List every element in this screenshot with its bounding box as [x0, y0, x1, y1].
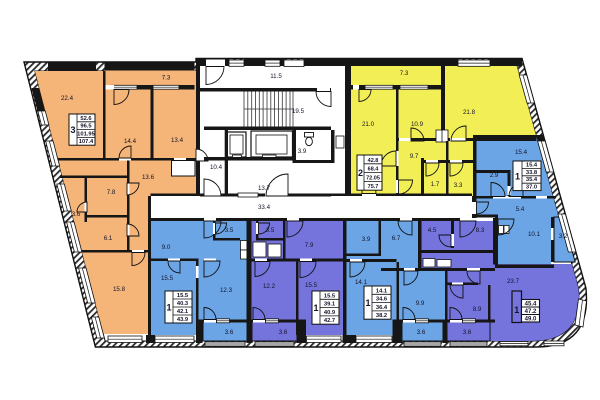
svg-text:33.8: 33.8: [526, 170, 538, 176]
svg-text:3.6: 3.6: [72, 211, 81, 218]
svg-text:1: 1: [365, 298, 370, 308]
svg-text:23.7: 23.7: [507, 278, 520, 285]
svg-text:49.0: 49.0: [525, 317, 537, 323]
svg-text:3.9: 3.9: [362, 236, 371, 243]
svg-text:7.3: 7.3: [162, 75, 171, 82]
svg-text:15.8: 15.8: [113, 286, 126, 293]
svg-text:9.9: 9.9: [416, 300, 425, 307]
svg-text:5.4: 5.4: [516, 206, 525, 213]
svg-text:2: 2: [358, 168, 363, 178]
svg-text:15.5: 15.5: [177, 293, 189, 299]
svg-text:3.6: 3.6: [463, 329, 472, 336]
svg-text:10.4: 10.4: [210, 164, 223, 171]
svg-text:42.1: 42.1: [177, 309, 189, 315]
svg-text:107.4: 107.4: [79, 139, 94, 145]
svg-text:38.2: 38.2: [376, 313, 387, 319]
svg-text:15.5: 15.5: [161, 275, 174, 282]
svg-text:3.9: 3.9: [298, 148, 307, 155]
svg-text:40.9: 40.9: [324, 310, 336, 316]
svg-text:3.6: 3.6: [279, 329, 288, 336]
svg-text:12.3: 12.3: [220, 287, 233, 294]
svg-text:47.2: 47.2: [525, 309, 537, 315]
svg-text:15.5: 15.5: [324, 293, 336, 299]
svg-text:14.1: 14.1: [355, 279, 368, 286]
svg-text:7.9: 7.9: [305, 242, 314, 249]
svg-text:22.4: 22.4: [61, 95, 74, 102]
svg-text:15.4: 15.4: [515, 149, 528, 156]
svg-text:35.4: 35.4: [526, 177, 538, 183]
svg-text:13.4: 13.4: [171, 137, 184, 144]
svg-text:13.7: 13.7: [258, 185, 271, 192]
svg-text:36.4: 36.4: [376, 305, 388, 311]
svg-text:3.5: 3.5: [225, 227, 234, 234]
svg-text:7.8: 7.8: [107, 189, 116, 196]
svg-text:75.7: 75.7: [368, 184, 379, 190]
svg-text:1: 1: [313, 303, 318, 313]
svg-text:3.6: 3.6: [225, 329, 234, 336]
svg-text:9.0: 9.0: [162, 244, 171, 251]
svg-text:43.9: 43.9: [177, 317, 189, 323]
svg-text:72.05: 72.05: [366, 175, 380, 181]
svg-text:10.1: 10.1: [528, 231, 541, 238]
svg-text:3.5: 3.5: [266, 227, 275, 234]
svg-text:42.8: 42.8: [368, 158, 379, 164]
svg-text:19.5: 19.5: [292, 108, 305, 115]
svg-text:52.6: 52.6: [80, 116, 92, 122]
svg-text:3.2: 3.2: [559, 233, 568, 240]
svg-text:40.3: 40.3: [177, 301, 189, 307]
svg-text:42.7: 42.7: [324, 318, 335, 324]
svg-text:21.0: 21.0: [362, 121, 375, 128]
svg-text:3: 3: [70, 125, 75, 135]
svg-text:101.95: 101.95: [77, 131, 96, 137]
svg-text:68.4: 68.4: [368, 167, 380, 173]
svg-text:4.5: 4.5: [428, 227, 437, 234]
svg-text:3.3: 3.3: [454, 182, 463, 189]
svg-text:39.1: 39.1: [324, 302, 336, 308]
svg-text:6.7: 6.7: [392, 235, 401, 242]
svg-text:1: 1: [166, 303, 171, 313]
svg-text:13.6: 13.6: [142, 174, 155, 181]
svg-text:15.5: 15.5: [305, 282, 318, 289]
svg-text:33.4: 33.4: [258, 204, 271, 211]
svg-text:37.0: 37.0: [526, 185, 537, 191]
svg-text:11.5: 11.5: [270, 73, 282, 80]
svg-text:34.6: 34.6: [376, 297, 388, 303]
svg-text:15.4: 15.4: [526, 162, 538, 168]
svg-text:6.1: 6.1: [104, 235, 113, 242]
svg-text:8.3: 8.3: [476, 227, 485, 234]
svg-text:10.9: 10.9: [411, 121, 424, 128]
svg-text:14.1: 14.1: [376, 288, 388, 294]
svg-text:2.9: 2.9: [490, 172, 499, 179]
svg-text:8.9: 8.9: [473, 306, 482, 313]
svg-text:21.8: 21.8: [463, 109, 476, 116]
svg-text:12.2: 12.2: [263, 283, 276, 290]
svg-text:9.7: 9.7: [410, 153, 419, 160]
svg-text:14.4: 14.4: [124, 138, 137, 145]
svg-text:45.4: 45.4: [525, 302, 537, 308]
svg-text:1: 1: [514, 305, 519, 315]
svg-text:3.6: 3.6: [417, 329, 426, 336]
svg-text:7.3: 7.3: [400, 70, 409, 77]
svg-text:1.7: 1.7: [431, 181, 440, 188]
svg-text:1: 1: [515, 171, 520, 181]
svg-text:96.5: 96.5: [80, 124, 92, 130]
